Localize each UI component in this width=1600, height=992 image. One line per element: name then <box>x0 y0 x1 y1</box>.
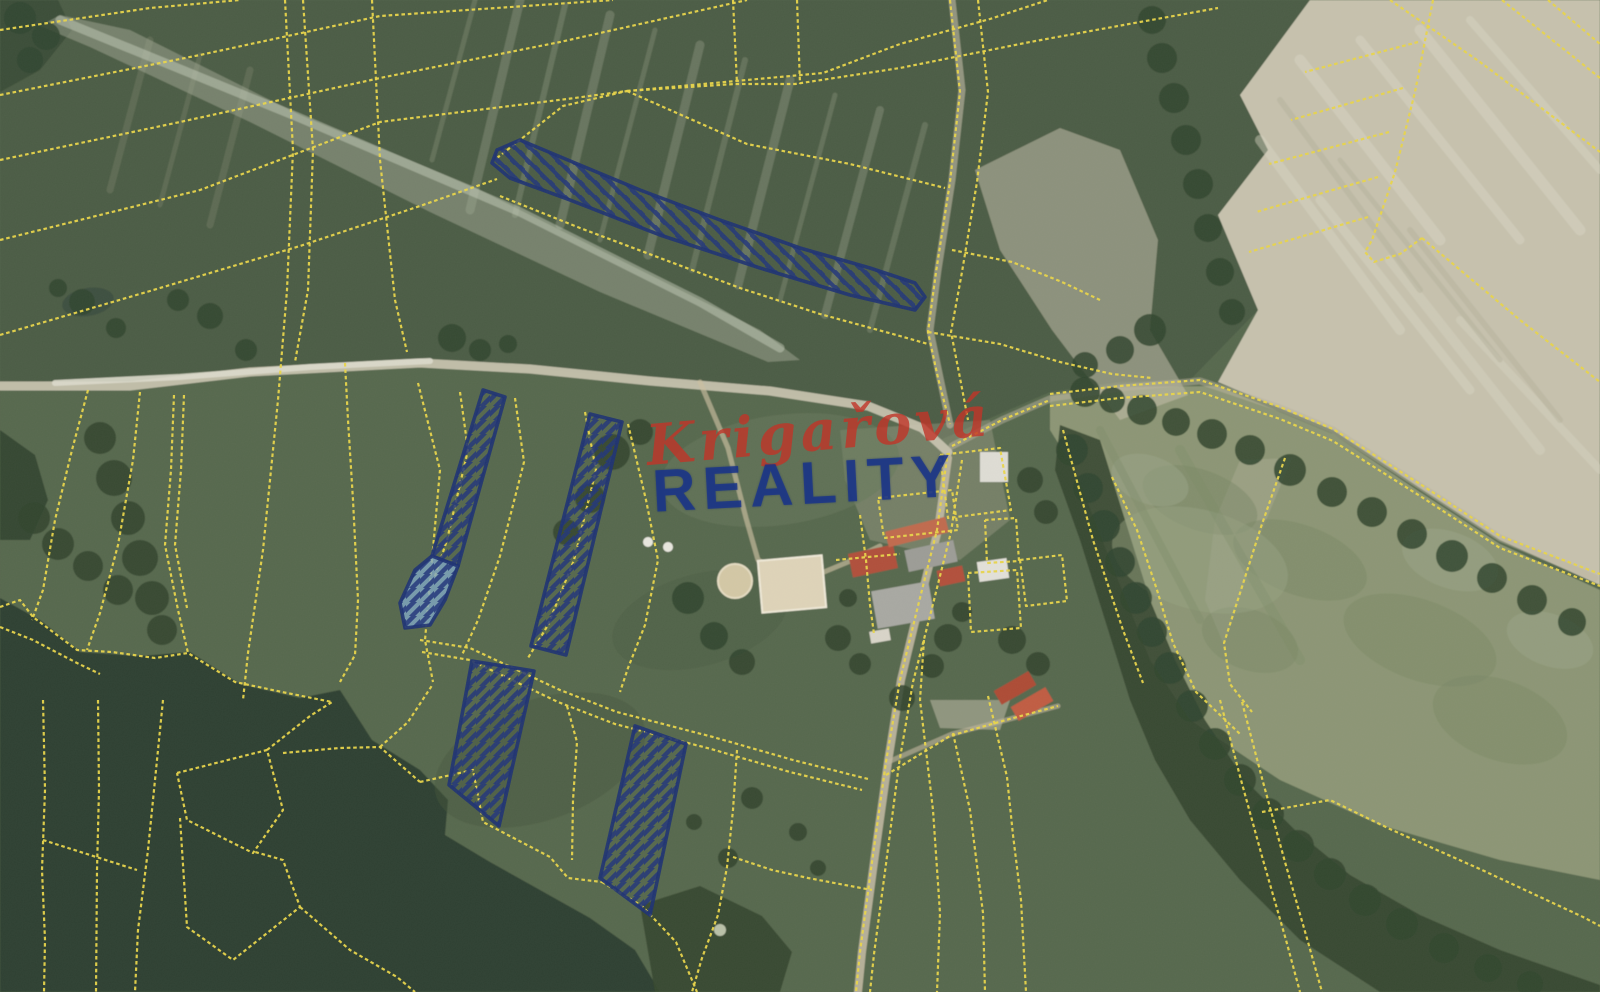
photo-grain-overlay <box>0 0 1600 992</box>
map-viewport[interactable]: Krigařová REALITY <box>0 0 1600 992</box>
map-canvas[interactable] <box>0 0 1600 992</box>
